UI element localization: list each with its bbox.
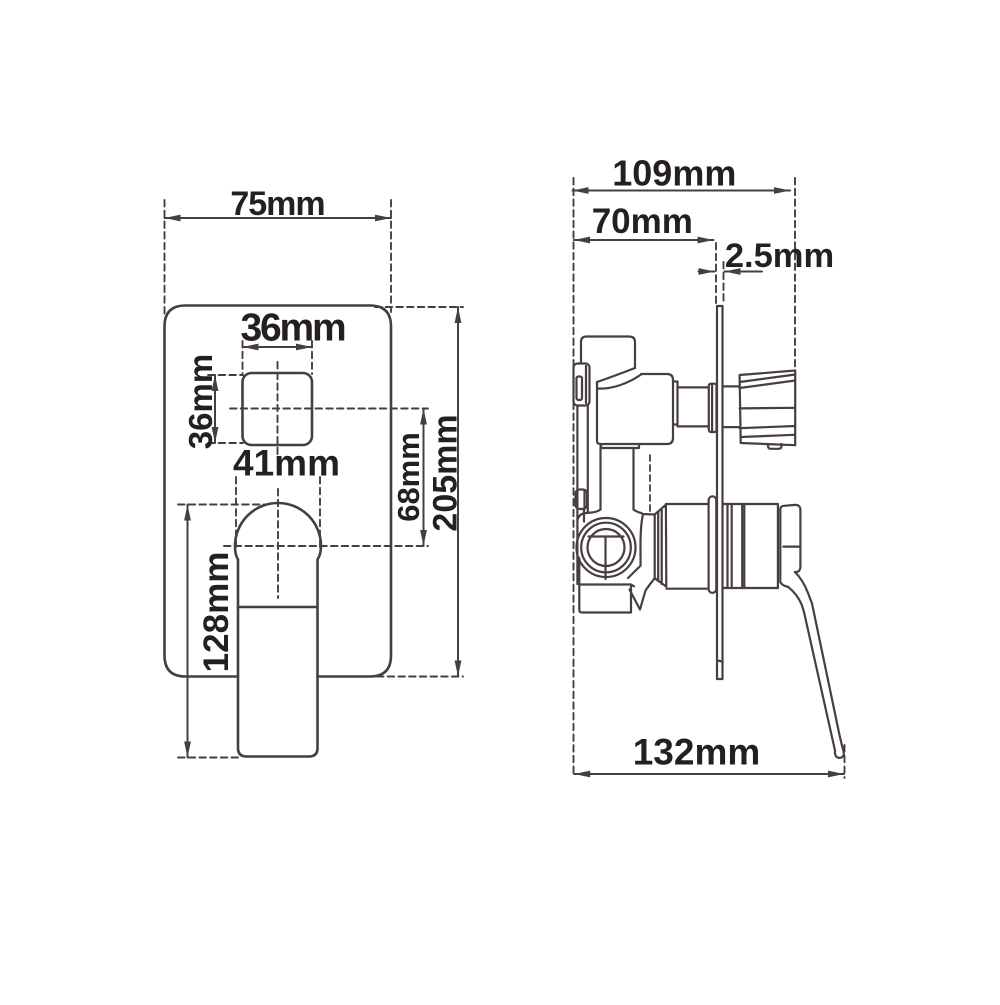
svg-text:109mm: 109mm [612,152,736,193]
svg-text:68mm: 68mm [391,432,426,522]
svg-text:205mm: 205mm [427,414,465,531]
svg-text:36mm: 36mm [241,307,345,350]
svg-text:36mm: 36mm [182,354,219,449]
svg-text:70mm: 70mm [592,202,693,241]
svg-text:2.5mm: 2.5mm [725,237,834,275]
svg-text:132mm: 132mm [633,732,761,773]
svg-text:128mm: 128mm [197,552,236,673]
svg-text:41mm: 41mm [233,443,340,484]
svg-text:75mm: 75mm [230,185,324,223]
